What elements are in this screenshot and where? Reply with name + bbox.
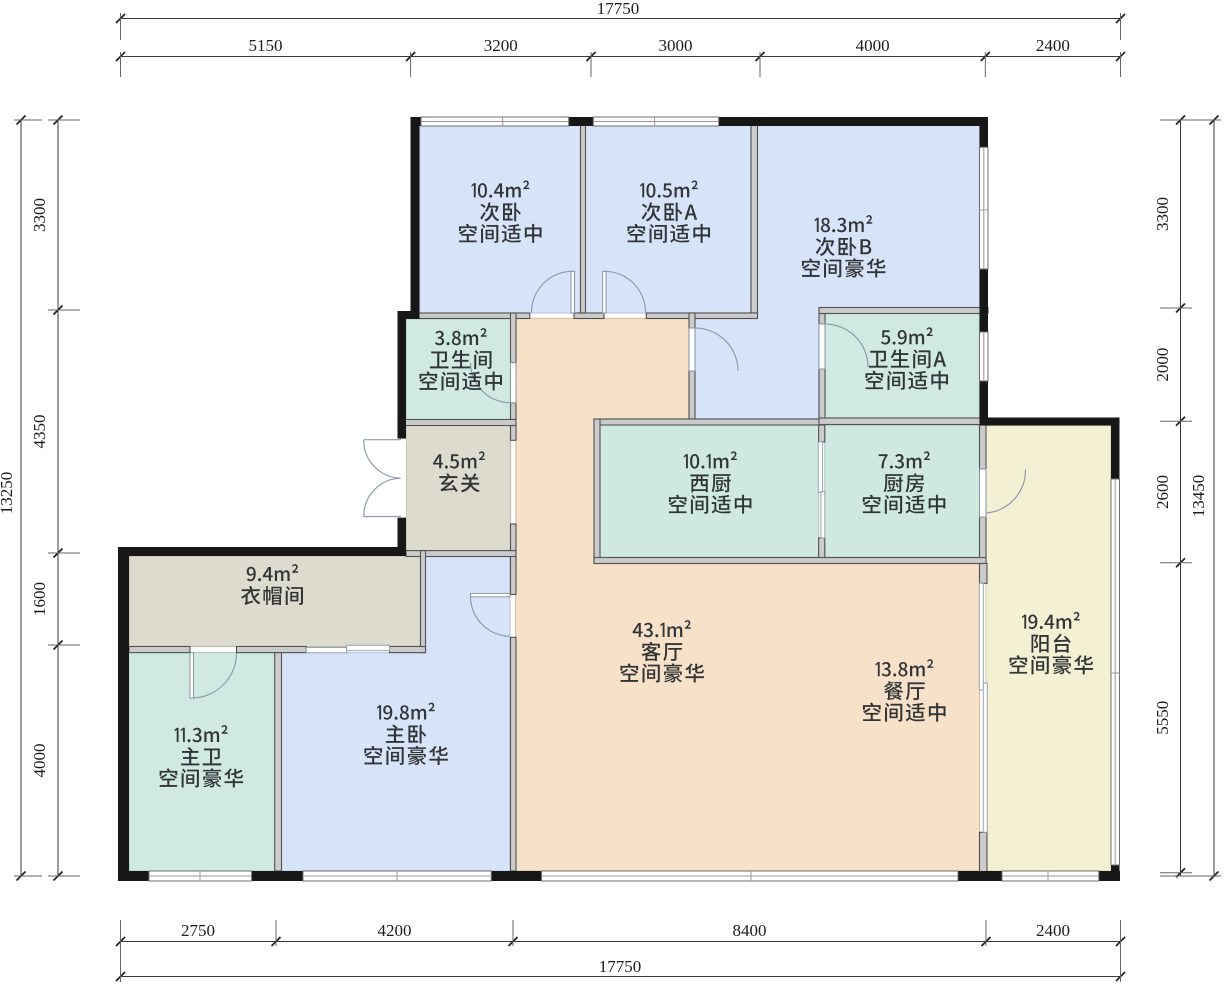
svg-text:13250: 13250 — [0, 472, 16, 515]
svg-text:3200: 3200 — [484, 36, 518, 55]
svg-text:2400: 2400 — [1036, 921, 1070, 940]
svg-text:13450: 13450 — [1189, 475, 1208, 518]
svg-text:5550: 5550 — [1153, 701, 1172, 735]
svg-text:5150: 5150 — [249, 36, 283, 55]
svg-text:8400: 8400 — [733, 921, 767, 940]
svg-text:3000: 3000 — [659, 36, 693, 55]
svg-text:2750: 2750 — [181, 921, 215, 940]
svg-text:4350: 4350 — [30, 415, 49, 449]
svg-text:4200: 4200 — [378, 921, 412, 940]
svg-text:2400: 2400 — [1036, 36, 1070, 55]
svg-text:17750: 17750 — [599, 957, 642, 976]
svg-text:2000: 2000 — [1153, 348, 1172, 382]
svg-text:3300: 3300 — [1153, 197, 1172, 231]
svg-text:1600: 1600 — [30, 582, 49, 616]
svg-text:2600: 2600 — [1153, 475, 1172, 509]
svg-text:4000: 4000 — [856, 36, 890, 55]
svg-text:4000: 4000 — [30, 744, 49, 778]
svg-text:17750: 17750 — [597, 0, 640, 18]
svg-text:3300: 3300 — [30, 198, 49, 232]
